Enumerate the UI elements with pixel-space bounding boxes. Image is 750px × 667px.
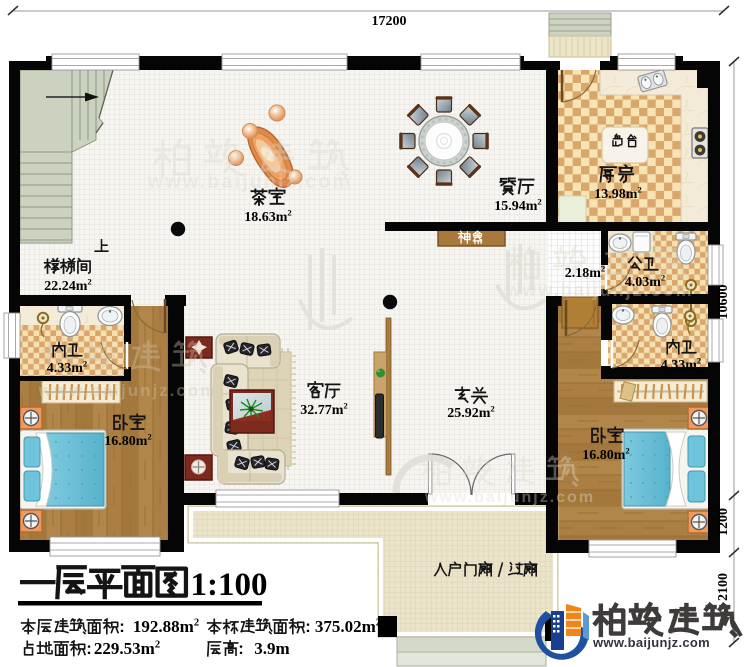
svg-text:192.88m2: 192.88m2	[133, 617, 199, 636]
svg-text:www.baijunjz.com: www.baijunjz.com	[147, 171, 353, 193]
svg-text:10600: 10600	[716, 285, 731, 320]
svg-text:15.94m2: 15.94m2	[494, 197, 542, 214]
svg-text:2100: 2100	[716, 573, 731, 601]
svg-text:2.18m2: 2.18m2	[565, 264, 606, 281]
svg-text:4.03m2: 4.03m2	[625, 273, 666, 290]
svg-text:1200: 1200	[716, 508, 731, 536]
svg-text::: :	[238, 640, 244, 658]
svg-text:22.24m2: 22.24m2	[44, 277, 92, 294]
svg-text:www.baijunjz.com: www.baijunjz.com	[424, 489, 595, 506]
svg-text:4.33m2: 4.33m2	[661, 356, 702, 373]
svg-text:www.baijunjz.com: www.baijunjz.com	[38, 381, 218, 400]
svg-text:13.98m2: 13.98m2	[594, 185, 642, 202]
svg-text::: :	[86, 640, 92, 658]
svg-text:www.baijunjz.com: www.baijunjz.com	[592, 635, 710, 650]
svg-text:229.53m2: 229.53m2	[94, 639, 160, 658]
svg-text::: :	[119, 618, 125, 636]
svg-text:4.33m2: 4.33m2	[47, 359, 88, 376]
svg-text:18.63m2: 18.63m2	[244, 208, 292, 225]
svg-text:375.02m2: 375.02m2	[315, 617, 381, 636]
svg-text:32.77m2: 32.77m2	[300, 401, 348, 418]
svg-text::: :	[305, 618, 311, 636]
svg-text:17200: 17200	[372, 14, 407, 29]
svg-text:1:100: 1:100	[191, 567, 268, 603]
svg-text:16.80m2: 16.80m2	[104, 432, 152, 449]
svg-text:3.9m: 3.9m	[254, 639, 289, 658]
svg-text:16.80m2: 16.80m2	[582, 446, 630, 463]
svg-text:25.92m2: 25.92m2	[447, 404, 495, 421]
